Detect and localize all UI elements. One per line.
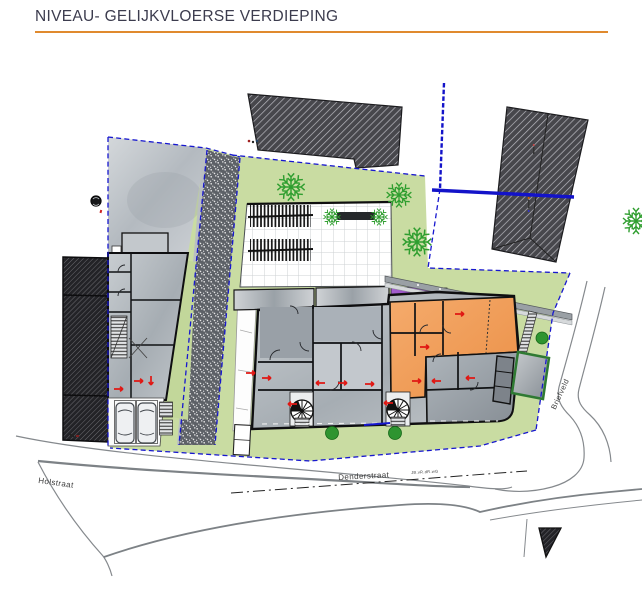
shrub (389, 427, 402, 440)
room-patch (260, 307, 312, 358)
car (116, 403, 134, 443)
shrub (326, 427, 339, 440)
road-side-branch (524, 519, 527, 557)
room-patch (314, 307, 381, 341)
road-curb-south (104, 489, 642, 557)
tree (623, 208, 642, 234)
bike-rack (160, 420, 173, 435)
building-main (252, 292, 519, 429)
shrub (536, 332, 548, 344)
manhole-symbol (91, 196, 102, 213)
road-briefveld-east-curb (578, 287, 611, 462)
small-structure (233, 425, 251, 456)
site-plan-page: NIVEAU- GELIJKVLOERSE VERDIEPING (0, 0, 642, 590)
traffic-island-hatched (539, 528, 561, 557)
parcel-annex (122, 233, 168, 253)
building-left (108, 253, 196, 420)
bench (337, 212, 375, 220)
garage-structure (493, 356, 514, 404)
site-plan-drawing (0, 0, 642, 590)
car (138, 403, 156, 443)
building-existing-west (63, 257, 108, 442)
road-curb-south-inner (490, 500, 642, 520)
bike-rack (160, 402, 173, 417)
building-existing-northeast (492, 107, 588, 262)
building-existing-north (248, 94, 402, 168)
property-line-vertical (440, 83, 444, 189)
plaza (240, 202, 392, 287)
